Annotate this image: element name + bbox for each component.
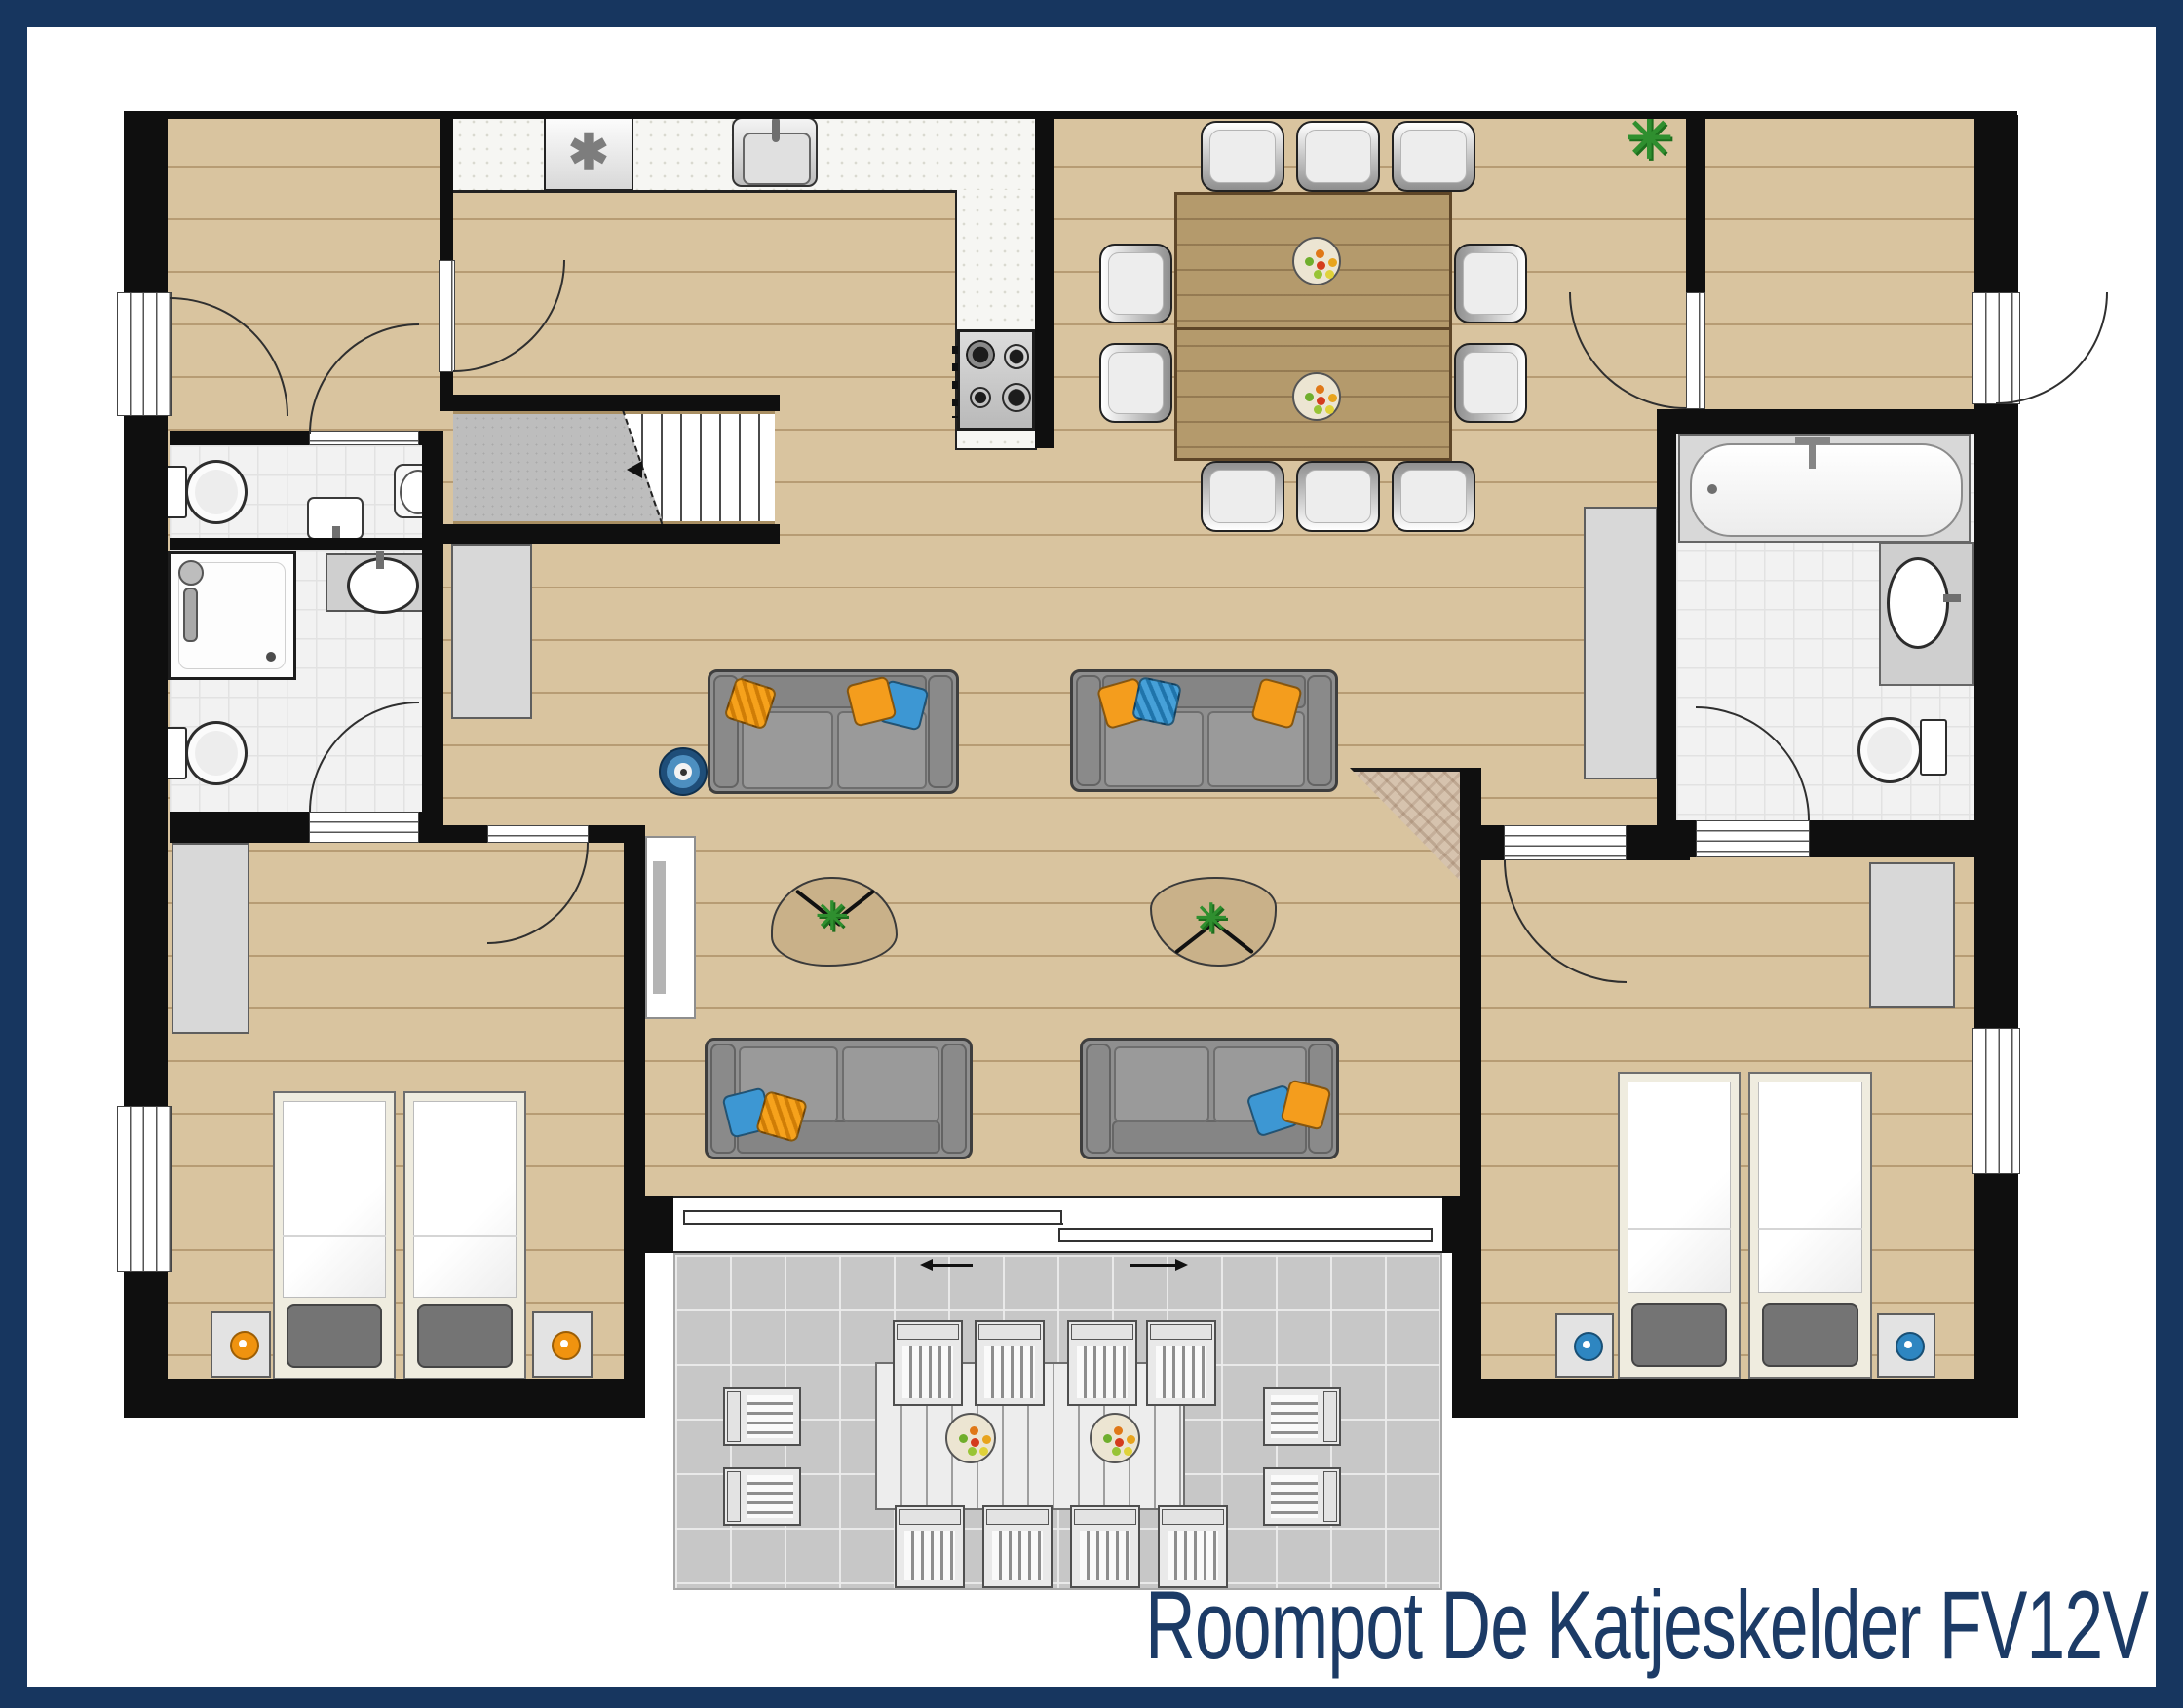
- bathtub: [1678, 434, 1971, 543]
- dining-chair: [1296, 121, 1380, 192]
- door-arc: [1996, 292, 2108, 404]
- wall: [440, 115, 453, 260]
- slide-arrow-right-icon: [1175, 1259, 1188, 1271]
- dining-chair: [1392, 461, 1475, 532]
- fruit-bowl: [945, 1413, 996, 1463]
- bed-pillow: [1762, 1303, 1858, 1367]
- freezer-icon: ✱: [568, 125, 609, 179]
- single-bed: [273, 1091, 396, 1380]
- wall: [422, 431, 443, 825]
- terrace-chair: [1263, 1467, 1341, 1526]
- sliding-door: [673, 1196, 1442, 1253]
- door-jamb-bedroom-right: [1504, 825, 1627, 860]
- fruit-bowl: [1292, 372, 1341, 421]
- bathroom-left-washbasin: [326, 553, 433, 612]
- bathroom-right-toilet-bowl: [1857, 717, 1922, 783]
- drain-icon: [266, 652, 276, 662]
- hall-cabinet: [451, 544, 532, 719]
- wall: [170, 538, 443, 550]
- border-right: [2156, 0, 2183, 1708]
- wall: [624, 825, 645, 1418]
- wall: [1810, 820, 2017, 857]
- bed-pillow: [1631, 1303, 1727, 1367]
- robot-vacuum: [659, 747, 708, 796]
- dining-table: [1174, 192, 1452, 461]
- pillow: [1131, 676, 1182, 727]
- wc-hand-basin: [307, 497, 364, 540]
- faucet-icon: [1943, 594, 1961, 602]
- sink-faucet-icon: [772, 117, 780, 142]
- dining-chair: [1099, 244, 1172, 323]
- burner-icon: [970, 387, 991, 408]
- tv-unit: [645, 836, 696, 1019]
- tub-inner: [1690, 443, 1963, 537]
- border-top: [0, 0, 2183, 27]
- border-left: [0, 0, 27, 1708]
- terrace-chair: [975, 1320, 1045, 1406]
- wall: [1657, 409, 2017, 434]
- staircase: [453, 411, 775, 524]
- wall: [440, 524, 780, 544]
- wall: [1452, 1379, 2017, 1418]
- plant-icon: ✳: [816, 894, 849, 939]
- wall: [124, 111, 2017, 119]
- drain-icon: [1707, 484, 1717, 494]
- dining-chair: [1454, 343, 1527, 423]
- bed-pillow: [287, 1304, 382, 1368]
- door-jamb-hall-right: [1686, 292, 1705, 409]
- border-bottom: [0, 1687, 2183, 1708]
- slide-arrow-right-icon: [1130, 1264, 1177, 1267]
- kitchen-sink: [732, 117, 818, 187]
- terrace-chair: [723, 1467, 801, 1526]
- single-bed: [403, 1091, 526, 1380]
- wardrobe-bedroom-right: [1869, 862, 1955, 1008]
- terrace-chair: [893, 1320, 963, 1406]
- stove-knobs: [952, 346, 958, 418]
- dining-chair: [1099, 343, 1172, 423]
- wardrobe-bedroom-left: [172, 843, 249, 1034]
- nightstand: [1555, 1313, 1614, 1378]
- terrace-chair: [1067, 1320, 1137, 1406]
- bathroom-right-washbasin: [1879, 542, 1974, 686]
- tub-faucet-icon: [1809, 443, 1816, 469]
- faucet-icon: [376, 551, 384, 569]
- burner-icon: [1004, 344, 1029, 369]
- wall: [645, 1196, 673, 1253]
- plant-icon: ✳: [1195, 896, 1228, 941]
- wall: [1460, 825, 1504, 860]
- nightstand: [532, 1311, 593, 1378]
- shower-rail-icon: [183, 588, 198, 642]
- dining-chair: [1296, 461, 1380, 532]
- wall: [440, 395, 780, 411]
- wall: [1657, 820, 1696, 857]
- entry-door-left: [117, 292, 172, 416]
- dining-chair: [1454, 244, 1527, 323]
- window-bedroom-left: [117, 1106, 172, 1272]
- wall: [170, 431, 309, 445]
- dining-chair: [1201, 121, 1284, 192]
- fruit-bowl: [1292, 237, 1341, 285]
- table-seam: [1177, 327, 1449, 330]
- shower: [168, 551, 296, 680]
- basin-bowl: [1887, 557, 1949, 649]
- freezer: ✱: [544, 115, 633, 191]
- bathroom-left-toilet-bowl: [185, 721, 248, 785]
- bed-pillow: [417, 1304, 513, 1368]
- stair-direction-arrow: [627, 461, 642, 478]
- wall: [124, 1379, 645, 1418]
- single-bed: [1748, 1072, 1872, 1379]
- burner-icon: [966, 340, 995, 369]
- wc-toilet-bowl: [185, 460, 248, 524]
- tv-screen: [653, 861, 666, 994]
- wall: [1035, 115, 1054, 448]
- wall: [170, 812, 309, 843]
- floor-plan: ✱: [0, 0, 2183, 1708]
- bathroom-right-toilet-tank: [1920, 719, 1947, 776]
- terrace-chair: [1263, 1387, 1341, 1446]
- fruit-bowl: [1090, 1413, 1140, 1463]
- shower-head-icon: [178, 560, 204, 586]
- terrace-chair: [895, 1505, 965, 1588]
- wall: [1657, 409, 1676, 857]
- terrace-chair: [1146, 1320, 1216, 1406]
- single-bed: [1618, 1072, 1741, 1379]
- door-jamb-bedroom-left: [487, 825, 589, 843]
- dining-chair: [1392, 121, 1475, 192]
- wall: [1686, 115, 1705, 292]
- page-title: Roompot De Katjeskelder FV12V: [1145, 1570, 2148, 1681]
- slide-arrow-left-icon: [920, 1259, 933, 1271]
- window-bedroom-right: [1972, 1028, 2020, 1174]
- terrace-chair: [1070, 1505, 1140, 1588]
- terrace-chair: [723, 1387, 801, 1446]
- dining-cabinet: [1584, 507, 1658, 779]
- dining-chair: [1201, 461, 1284, 532]
- wall: [419, 812, 443, 843]
- terrace-chair: [982, 1505, 1053, 1588]
- burner-icon: [1002, 383, 1031, 412]
- door-jamb-bathroom-right: [1696, 820, 1810, 857]
- wall: [443, 825, 487, 843]
- nightstand: [1877, 1313, 1935, 1378]
- door-jamb-bathroom-left: [309, 812, 419, 843]
- nightstand: [211, 1311, 271, 1378]
- stove: [957, 329, 1035, 431]
- slide-arrow-left-icon: [926, 1264, 973, 1267]
